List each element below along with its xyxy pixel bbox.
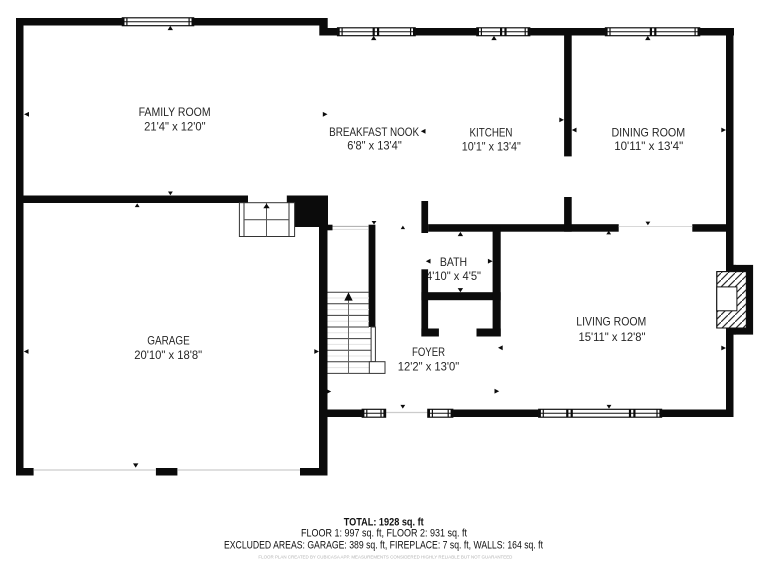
svg-text:FAMILY ROOM: FAMILY ROOM <box>139 105 211 119</box>
svg-text:FLOOR 1: 997 sq. ft, FLOOR 2:: FLOOR 1: 997 sq. ft, FLOOR 2: 931 sq. ft <box>301 527 467 539</box>
svg-text:4'10" x 4'5": 4'10" x 4'5" <box>426 269 481 283</box>
svg-text:15'11" x 12'8": 15'11" x 12'8" <box>579 330 646 344</box>
svg-text:GARAGE: GARAGE <box>147 334 190 348</box>
svg-text:KITCHEN: KITCHEN <box>470 125 513 139</box>
svg-text:21'4" x 12'0": 21'4" x 12'0" <box>144 120 206 134</box>
svg-text:FLOOR PLAN CREATED BY CUBICASA: FLOOR PLAN CREATED BY CUBICASA APP. MEAS… <box>258 555 513 560</box>
svg-text:DINING ROOM: DINING ROOM <box>611 125 685 139</box>
svg-text:10'1" x 13'4": 10'1" x 13'4" <box>462 139 521 153</box>
svg-text:12'2" x 13'0": 12'2" x 13'0" <box>398 359 460 373</box>
svg-text:BREAKFAST NOOK: BREAKFAST NOOK <box>329 125 419 139</box>
svg-text:EXCLUDED AREAS: GARAGE: 389 sq: EXCLUDED AREAS: GARAGE: 389 sq. ft, FIRE… <box>224 539 543 551</box>
svg-text:FOYER: FOYER <box>412 345 445 359</box>
svg-text:BATH: BATH <box>440 255 467 269</box>
svg-text:10'11" x 13'4": 10'11" x 13'4" <box>614 139 683 153</box>
svg-text:6'8" x 13'4": 6'8" x 13'4" <box>347 139 402 153</box>
svg-text:LIVING ROOM: LIVING ROOM <box>576 315 646 329</box>
svg-text:20'10" x 18'8": 20'10" x 18'8" <box>134 348 202 362</box>
